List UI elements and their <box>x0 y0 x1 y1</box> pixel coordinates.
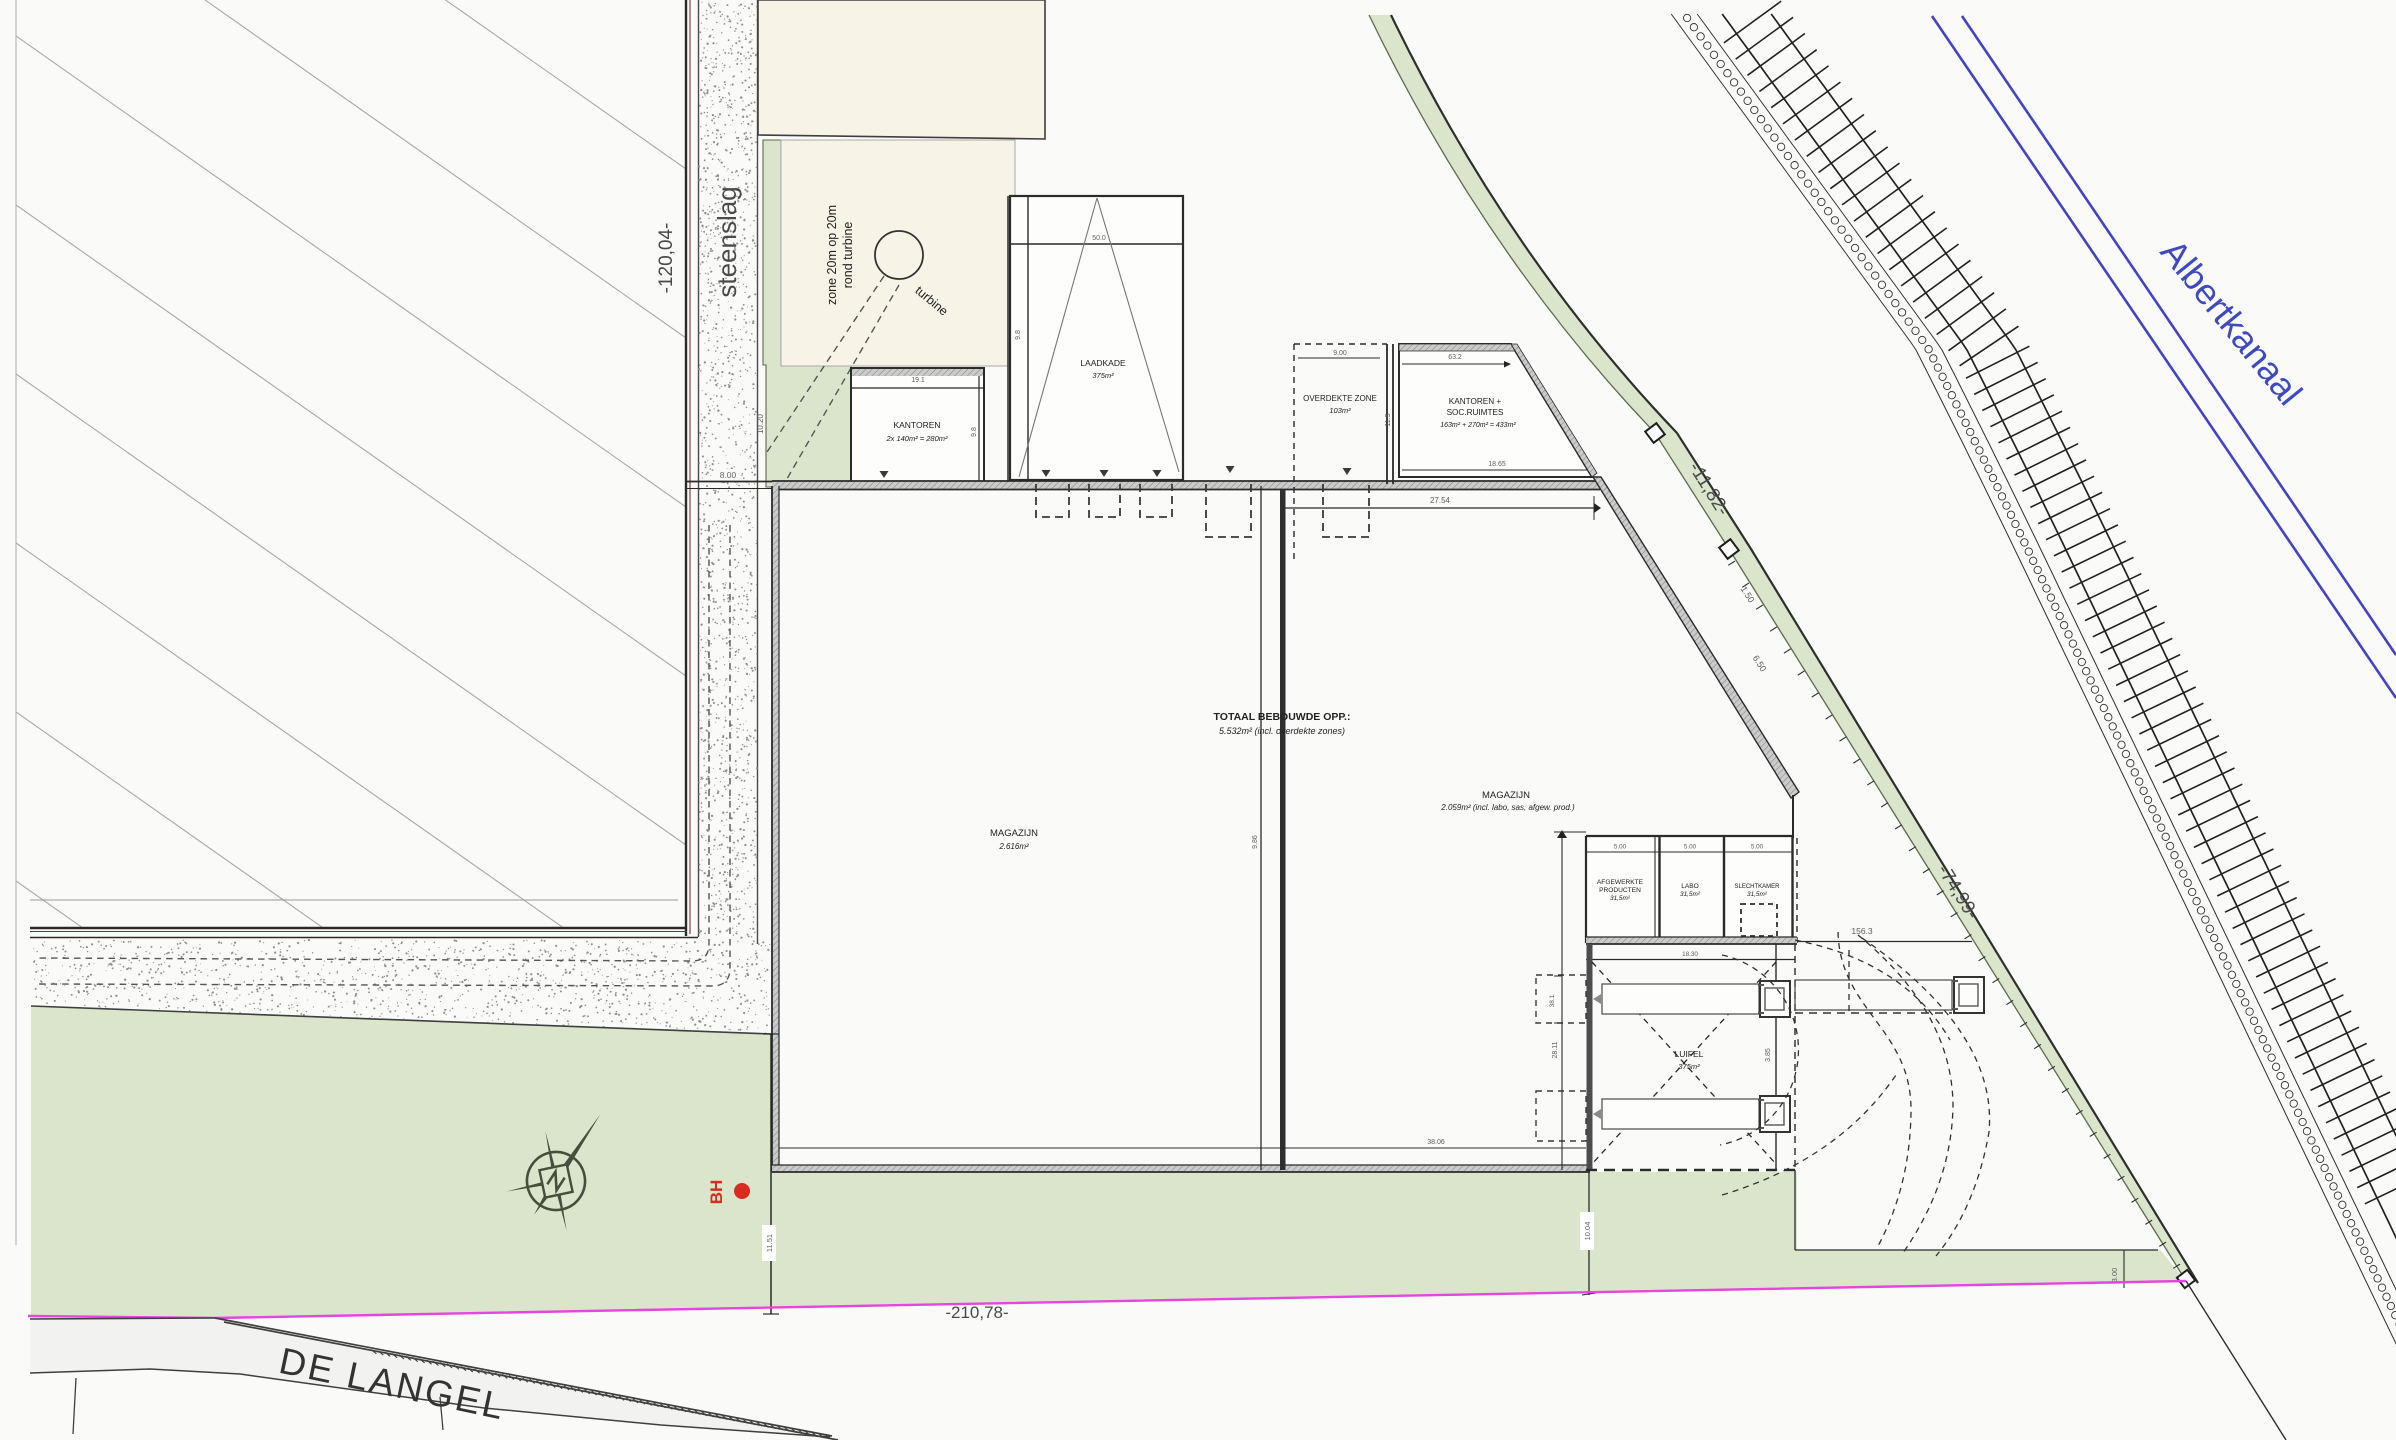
svg-text:LUIFEL: LUIFEL <box>1675 1049 1704 1059</box>
svg-text:LABO: LABO <box>1681 883 1699 890</box>
svg-text:11.5: 11.5 <box>1385 413 1392 426</box>
svg-text:375m²: 375m² <box>1678 1062 1700 1071</box>
svg-text:38.1: 38.1 <box>1549 994 1556 1007</box>
svg-text:KANTOREN +: KANTOREN + <box>1449 397 1502 406</box>
svg-text:18.65: 18.65 <box>1488 461 1506 468</box>
svg-text:10.20: 10.20 <box>756 413 765 434</box>
svg-text:5.00: 5.00 <box>1614 844 1627 851</box>
svg-text:8.00: 8.00 <box>720 470 737 480</box>
svg-text:50.0: 50.0 <box>1092 235 1106 242</box>
svg-text:38.06: 38.06 <box>1427 1139 1445 1146</box>
svg-text:OVERDEKTE ZONE: OVERDEKTE ZONE <box>1303 394 1377 403</box>
svg-text:3.00: 3.00 <box>2110 1268 2119 1283</box>
svg-text:zone 20m op 20m: zone 20m op 20m <box>825 205 839 305</box>
svg-text:KANTOREN: KANTOREN <box>893 420 940 430</box>
svg-text:rond turbine: rond turbine <box>841 222 855 289</box>
svg-text:PRODUCTEN: PRODUCTEN <box>1599 887 1641 894</box>
svg-text:-120,04-: -120,04- <box>656 223 677 294</box>
svg-text:BH: BH <box>707 1180 726 1205</box>
svg-text:103m²: 103m² <box>1329 406 1351 415</box>
svg-text:31,5m²: 31,5m² <box>1680 891 1701 898</box>
svg-text:31,5m²: 31,5m² <box>1747 891 1768 898</box>
svg-text:63.2: 63.2 <box>1448 354 1462 361</box>
svg-text:156.3: 156.3 <box>1851 926 1873 936</box>
svg-text:LAADKADE: LAADKADE <box>1080 358 1126 368</box>
svg-text:31,5m²: 31,5m² <box>1610 895 1631 902</box>
svg-text:AFGEWERKTE: AFGEWERKTE <box>1597 879 1644 886</box>
svg-text:steenslag: steenslag <box>712 186 742 297</box>
svg-text:19.1: 19.1 <box>911 377 925 384</box>
svg-text:18.30: 18.30 <box>1682 951 1698 958</box>
svg-text:28.11: 28.11 <box>1552 1041 1559 1058</box>
svg-text:2x 140m² = 280m²: 2x 140m² = 280m² <box>885 434 948 443</box>
svg-text:5.532m² (incl. overdekte zones: 5.532m² (incl. overdekte zones) <box>1219 726 1345 736</box>
svg-text:MAGAZIJN: MAGAZIJN <box>990 828 1038 839</box>
svg-text:9.86: 9.86 <box>1252 835 1259 849</box>
svg-text:9.00: 9.00 <box>1333 350 1347 357</box>
svg-text:5.00: 5.00 <box>1751 844 1764 851</box>
svg-text:9.8: 9.8 <box>971 427 978 437</box>
svg-text:SLECHTKAMER: SLECHTKAMER <box>1734 884 1780 890</box>
svg-text:2.616m²: 2.616m² <box>998 842 1029 851</box>
svg-text:9.8: 9.8 <box>1015 330 1022 340</box>
svg-text:SOC.RUIMTES: SOC.RUIMTES <box>1447 408 1504 417</box>
svg-text:375m²: 375m² <box>1092 371 1114 380</box>
svg-text:27.54: 27.54 <box>1430 496 1451 505</box>
svg-text:2.059m² (incl. labo, sas, afge: 2.059m² (incl. labo, sas, afgew. prod.) <box>1440 803 1575 812</box>
svg-text:163m² + 270m² = 433m²: 163m² + 270m² = 433m² <box>1440 422 1516 429</box>
svg-text:10.04: 10.04 <box>1583 1222 1592 1241</box>
svg-text:5.00: 5.00 <box>1684 844 1697 851</box>
svg-text:MAGAZIJN: MAGAZIJN <box>1482 790 1530 801</box>
svg-text:11.51: 11.51 <box>765 1234 774 1252</box>
svg-text:TOTAAL BEBOUWDE OPP.:: TOTAAL BEBOUWDE OPP.: <box>1214 711 1351 723</box>
svg-text:-210,78-: -210,78- <box>945 1303 1008 1322</box>
svg-text:3.85: 3.85 <box>1765 1048 1772 1062</box>
